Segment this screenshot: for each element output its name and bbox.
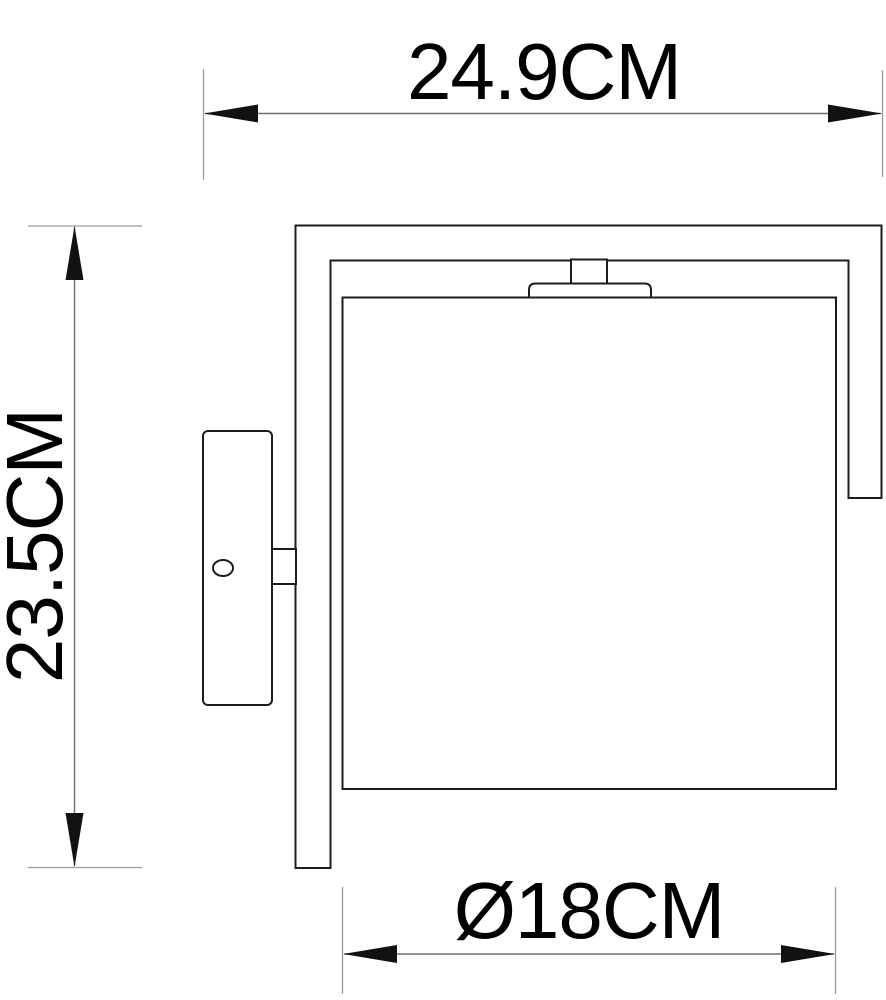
screw-hole (213, 560, 233, 576)
arrowhead-left-icon (204, 105, 258, 123)
technical-drawing-canvas: 24.9CM 23.5CM Ø18CM (0, 0, 886, 1000)
arrowhead-up-icon (66, 226, 84, 280)
arrowhead-right-icon (828, 105, 882, 123)
lamp-dimension-diagram: 24.9CM 23.5CM Ø18CM (0, 0, 886, 1000)
overall-height-label: 23.5CM (0, 409, 79, 683)
overall-width-label: 24.9CM (407, 27, 681, 116)
dimension-overall-height: 23.5CM (0, 226, 142, 868)
shade-stem (571, 260, 607, 284)
arrowhead-down-icon (66, 813, 84, 867)
dimension-shade-diameter: Ø18CM (343, 866, 836, 994)
shade-diameter-label: Ø18CM (454, 866, 725, 955)
arrowhead-left-icon (343, 945, 397, 963)
lampshade (343, 298, 837, 790)
mounting-connector (272, 549, 296, 584)
shade-mount-tab (529, 284, 651, 298)
arrowhead-right-icon (781, 945, 835, 963)
dimension-overall-width: 24.9CM (204, 27, 883, 180)
lamp-fixture (203, 226, 882, 869)
